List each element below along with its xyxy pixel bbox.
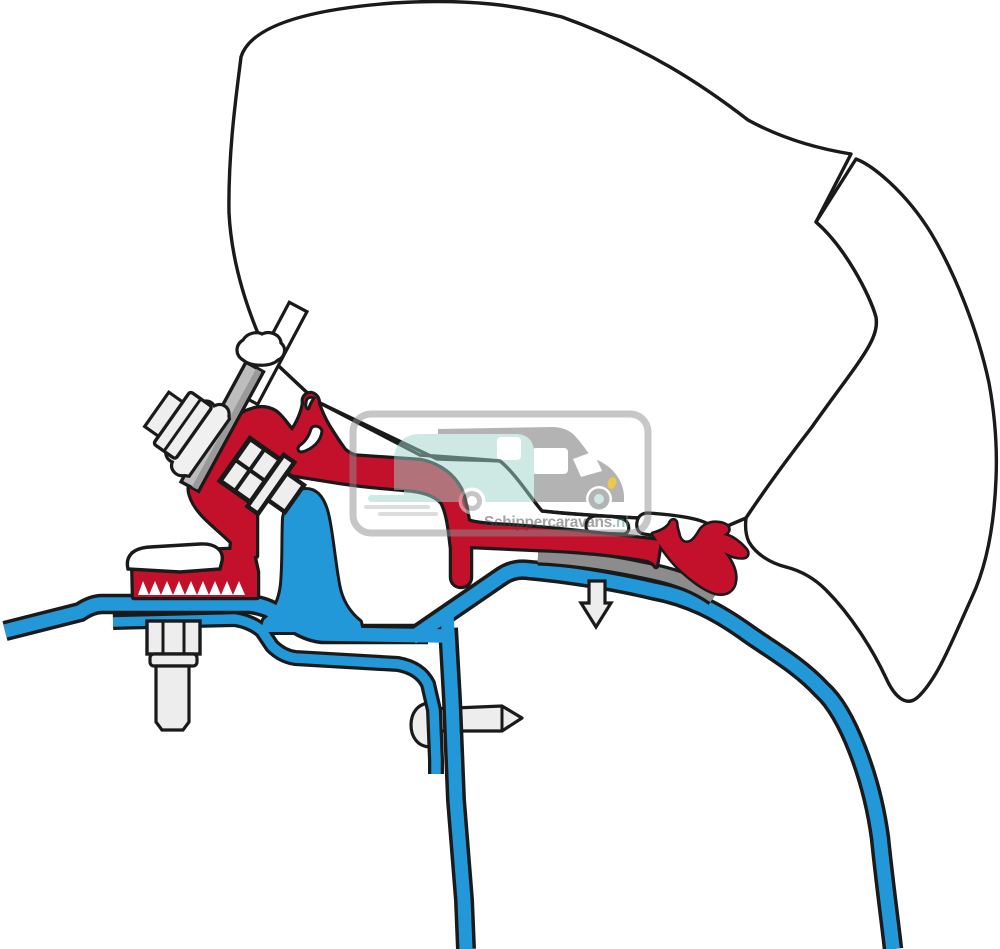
svg-text:Schippercaravans.nl: Schippercaravans.nl [484,514,629,531]
